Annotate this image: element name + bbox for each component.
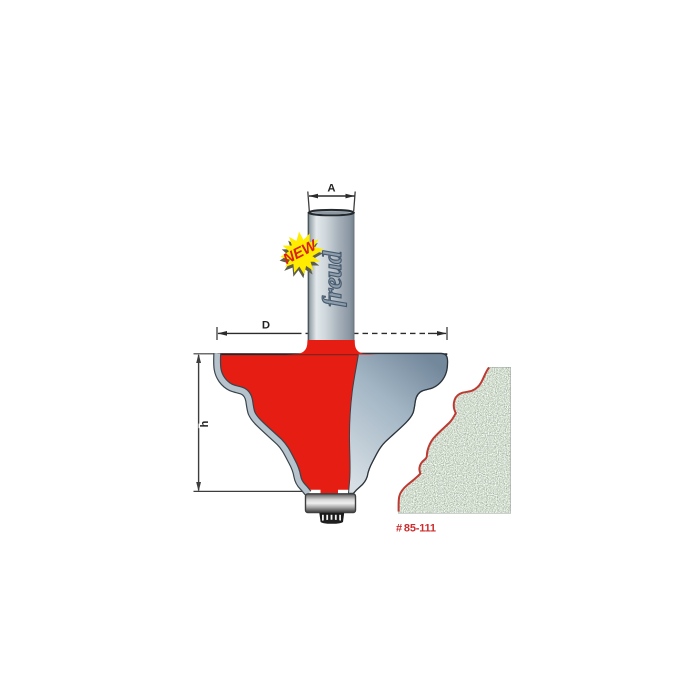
svg-text:A: A xyxy=(327,183,335,195)
svg-text:h: h xyxy=(199,420,211,427)
svg-text:D: D xyxy=(262,320,270,332)
svg-text:# 85-111: # 85-111 xyxy=(396,523,436,535)
svg-text:freud: freud xyxy=(318,250,347,307)
